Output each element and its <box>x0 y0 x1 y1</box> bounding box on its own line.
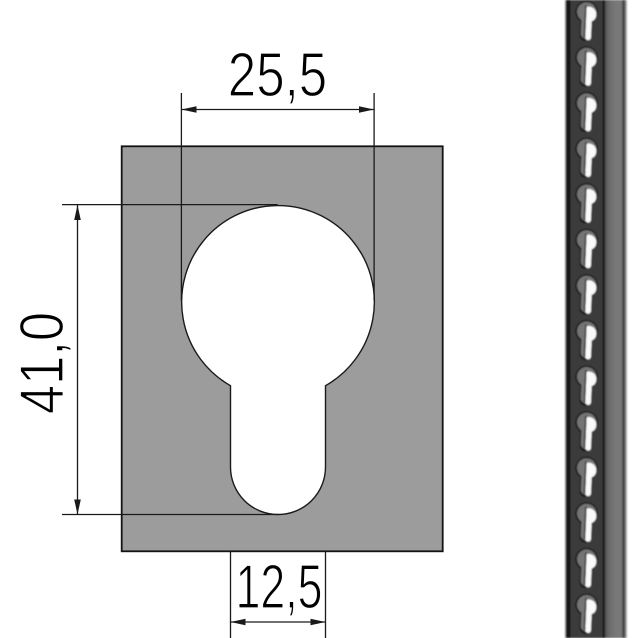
svg-text:25,5: 25,5 <box>228 41 327 110</box>
svg-text:41,0: 41,0 <box>8 312 77 414</box>
svg-text:12,5: 12,5 <box>236 553 323 622</box>
